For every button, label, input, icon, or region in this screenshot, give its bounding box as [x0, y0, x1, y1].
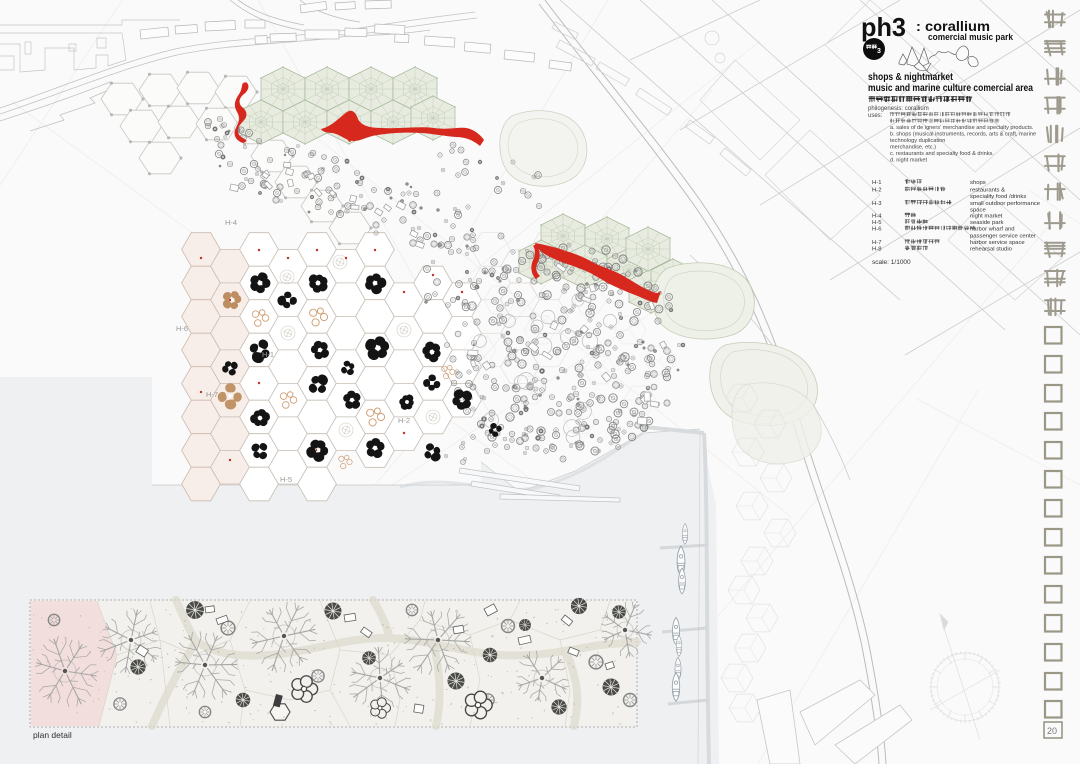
svg-text:H-2: H-2: [398, 416, 410, 425]
svg-text:H-1: H-1: [262, 350, 274, 359]
svg-text:20: 20: [1047, 726, 1057, 736]
svg-text:H-3: H-3: [872, 201, 882, 207]
svg-text:music and marine culture comer: music and marine culture comercial area: [868, 83, 1033, 94]
svg-text:H-6: H-6: [872, 227, 882, 233]
svg-text:H-7: H-7: [206, 390, 218, 399]
svg-text:d. night market: d. night market: [890, 158, 927, 164]
svg-text:H-4: H-4: [872, 214, 882, 220]
svg-text:H-4: H-4: [225, 218, 237, 227]
svg-text:H-5: H-5: [872, 220, 882, 226]
svg-text:merchandise, etc.): merchandise, etc.): [890, 145, 936, 151]
svg-text:a. sales of de igners’ merchan: a. sales of de igners’ merchandise and s…: [890, 125, 1034, 131]
svg-text:harbor service space: harbor service space: [970, 240, 1025, 246]
svg-text:philogenesis: corallium: philogenesis: corallium: [868, 106, 929, 112]
svg-text:3: 3: [877, 48, 881, 55]
svg-text:technology duplication: technology duplication: [890, 138, 945, 144]
svg-text:H-1: H-1: [872, 180, 882, 186]
svg-text:uses:: uses:: [868, 113, 883, 119]
svg-text:rehearsal studio: rehearsal studio: [970, 247, 1013, 253]
svg-text:comercial music park: comercial music park: [928, 32, 1014, 42]
svg-text:seaside park: seaside park: [970, 220, 1003, 226]
svg-text:H-2: H-2: [872, 188, 882, 194]
svg-text:ph3: ph3: [861, 12, 906, 42]
svg-text:speciality food /drinks: speciality food /drinks: [970, 194, 1026, 200]
svg-text:passenger service center: passenger service center: [970, 234, 1036, 240]
svg-text:space: space: [970, 207, 986, 213]
svg-text:H-6: H-6: [176, 324, 188, 333]
svg-text:shops: shops: [970, 180, 986, 186]
svg-text:H-8: H-8: [872, 247, 882, 253]
svg-text:b. shops (musical instruments,: b. shops (musical instruments, records, …: [890, 132, 1036, 138]
svg-text:H-7: H-7: [872, 240, 882, 246]
svg-text:shops & nightmarket: shops & nightmarket: [868, 72, 954, 83]
svg-text:scale: 1/1000: scale: 1/1000: [872, 259, 911, 266]
svg-text:small outdoor performance: small outdoor performance: [970, 201, 1041, 207]
svg-text:restaurants &: restaurants &: [970, 188, 1005, 194]
svg-text:c. restaurants and specialty f: c. restaurants and specialty food & drin…: [890, 151, 994, 157]
svg-text:H-5: H-5: [280, 475, 292, 484]
svg-text:night market: night market: [970, 214, 1003, 220]
svg-text:harbor wharf and: harbor wharf and: [970, 227, 1015, 233]
svg-text:plan detail: plan detail: [33, 730, 72, 740]
